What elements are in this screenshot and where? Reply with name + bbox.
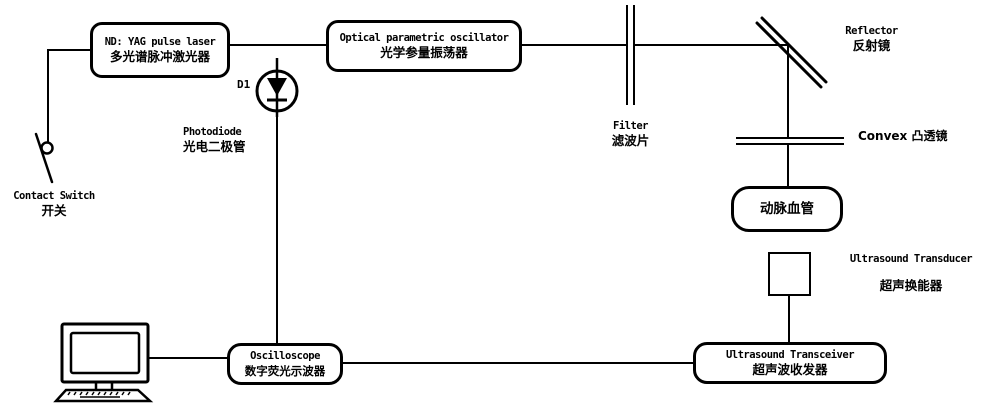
- photodiode-icon: [250, 55, 304, 117]
- laser-label-zh: 多光谱脉冲激光器: [110, 49, 210, 65]
- contact-switch-label-zh: 开关: [0, 203, 108, 219]
- computer-icon: [50, 320, 160, 403]
- filter-label-en: Filter: [593, 120, 668, 133]
- transducer-label: Ultrasound Transducer 超声换能器: [841, 253, 981, 294]
- photoacoustic-setup-diagram: ND: YAG pulse laser 多光谱脉冲激光器 Optical par…: [0, 0, 981, 403]
- contact-switch-icon: [28, 132, 68, 187]
- reflector-label-zh: 反射镜: [824, 38, 919, 54]
- contact-switch-label-en: Contact Switch: [0, 190, 108, 203]
- reflector-label: Reflector 反射镜: [824, 25, 919, 54]
- opo-box: Optical parametric oscillator 光学参量振荡器: [326, 20, 522, 72]
- beam-laser-to-opo: [230, 44, 326, 46]
- wire-scope-to-transceiver: [343, 362, 693, 364]
- opo-label-en: Optical parametric oscillator: [340, 32, 509, 45]
- oscilloscope-label-zh: 数字荧光示波器: [245, 363, 326, 379]
- photodiode-label: Photodiode 光电二极管: [183, 126, 258, 155]
- filter-label: Filter 滤波片: [593, 120, 668, 149]
- wire-transducer-to-transceiver: [788, 296, 790, 342]
- filter-label-zh: 滤波片: [593, 133, 668, 149]
- wire-switch-vertical: [47, 49, 49, 143]
- transducer-label-en: Ultrasound Transducer: [841, 253, 981, 266]
- ultrasound-transducer-icon: [768, 252, 811, 296]
- oscilloscope-label-en: Oscilloscope: [250, 350, 320, 363]
- transceiver-label-zh: 超声波收发器: [752, 362, 827, 378]
- laser-box: ND: YAG pulse laser 多光谱脉冲激光器: [90, 22, 230, 78]
- convex-lens-icon: [736, 137, 844, 145]
- oscilloscope-box: Oscilloscope 数字荧光示波器: [227, 343, 343, 385]
- vessel-box: 动脉血管: [731, 186, 843, 232]
- photodiode-label-zh: 光电二极管: [183, 139, 258, 155]
- transceiver-box: Ultrasound Transceiver 超声波收发器: [693, 342, 887, 384]
- filter-plate-icon: [626, 5, 635, 105]
- beam-lens-to-vessel: [787, 145, 789, 186]
- photodiode-label-en: Photodiode: [183, 126, 258, 139]
- transducer-label-zh: 超声换能器: [841, 278, 981, 294]
- reflector-label-en: Reflector: [824, 25, 919, 38]
- opo-label-zh: 光学参量振荡器: [380, 45, 468, 61]
- photodiode-designator: D1: [237, 78, 250, 91]
- convex-lens-label: Convex 凸透镜: [858, 128, 978, 144]
- transceiver-label-en: Ultrasound Transceiver: [726, 349, 854, 362]
- convex-lens-label-text: Convex 凸透镜: [858, 128, 978, 144]
- reflector-mirror-icon: [745, 5, 835, 95]
- laser-label-en: ND: YAG pulse laser: [105, 36, 216, 49]
- vessel-label-zh: 动脉血管: [760, 201, 814, 217]
- contact-switch-label: Contact Switch 开关: [0, 190, 108, 219]
- wire-photodiode-to-scope: [276, 113, 278, 343]
- wire-laser-left: [48, 49, 90, 51]
